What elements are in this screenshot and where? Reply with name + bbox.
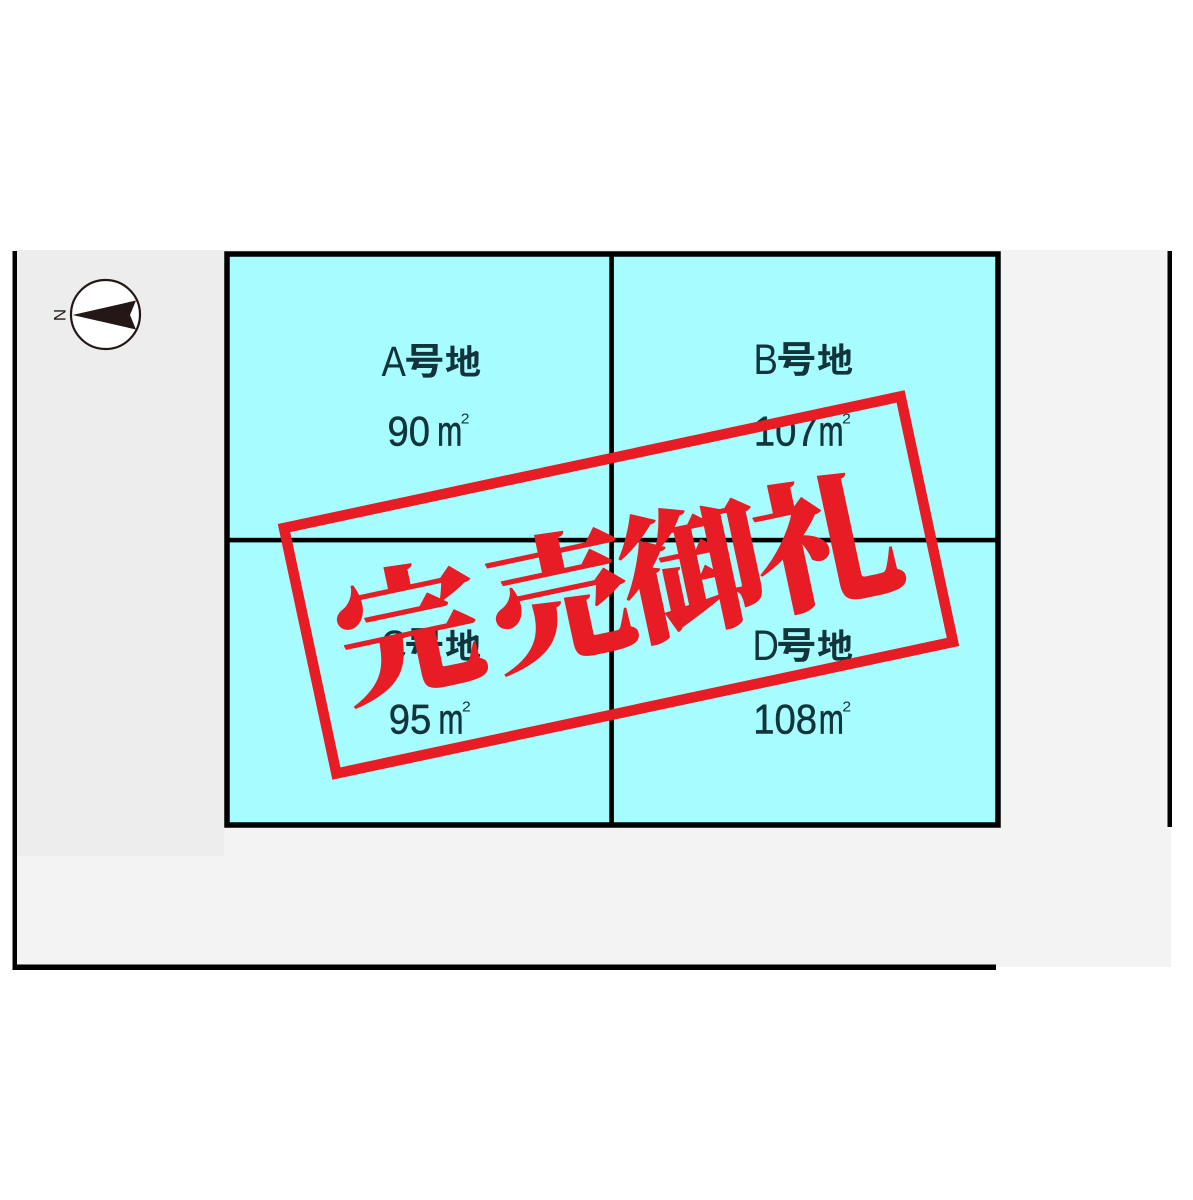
svg-text:95: 95	[389, 696, 432, 743]
svg-text:m: m	[439, 696, 464, 743]
svg-text:m: m	[819, 696, 844, 743]
svg-text:B: B	[754, 336, 778, 383]
svg-text:2: 2	[462, 699, 471, 716]
svg-text:D: D	[753, 622, 779, 669]
svg-text:N: N	[50, 309, 69, 321]
svg-text:90: 90	[388, 408, 431, 455]
svg-text:A: A	[382, 338, 407, 385]
svg-text:2: 2	[461, 411, 470, 428]
svg-text:m: m	[437, 408, 462, 455]
svg-text:2: 2	[842, 699, 851, 716]
svg-text:108: 108	[753, 696, 817, 743]
